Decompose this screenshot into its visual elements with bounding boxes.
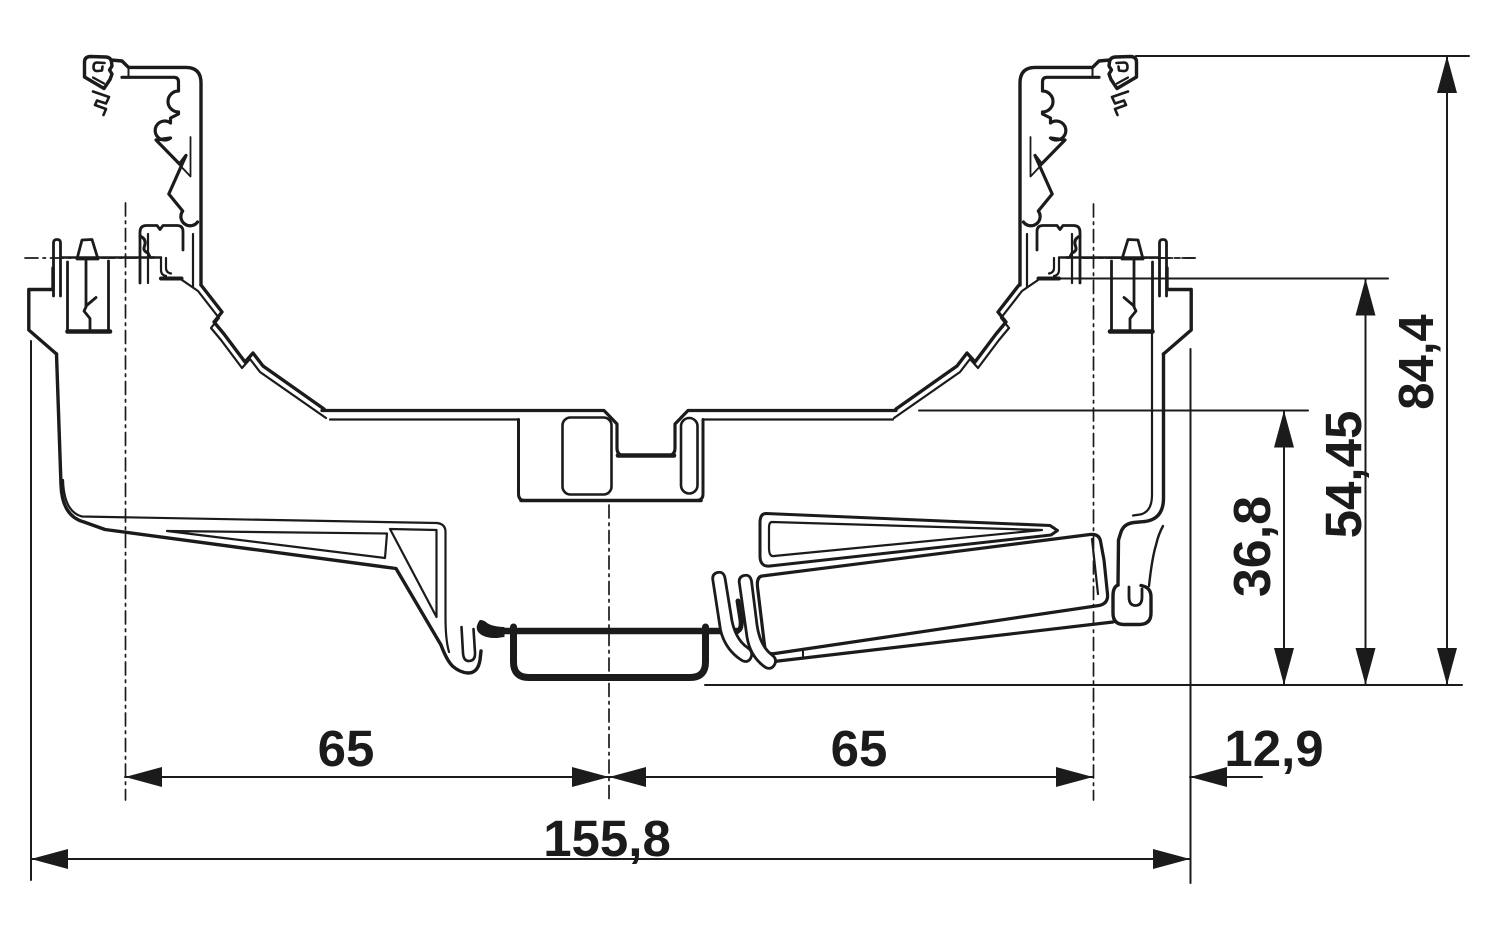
svg-text:155,8: 155,8: [543, 810, 671, 867]
svg-text:65: 65: [318, 720, 375, 777]
svg-text:84,4: 84,4: [1390, 314, 1444, 409]
svg-text:12,9: 12,9: [1224, 720, 1323, 777]
svg-text:36,8: 36,8: [1224, 496, 1282, 597]
svg-text:54,45: 54,45: [1315, 411, 1372, 539]
svg-text:65: 65: [831, 720, 888, 777]
